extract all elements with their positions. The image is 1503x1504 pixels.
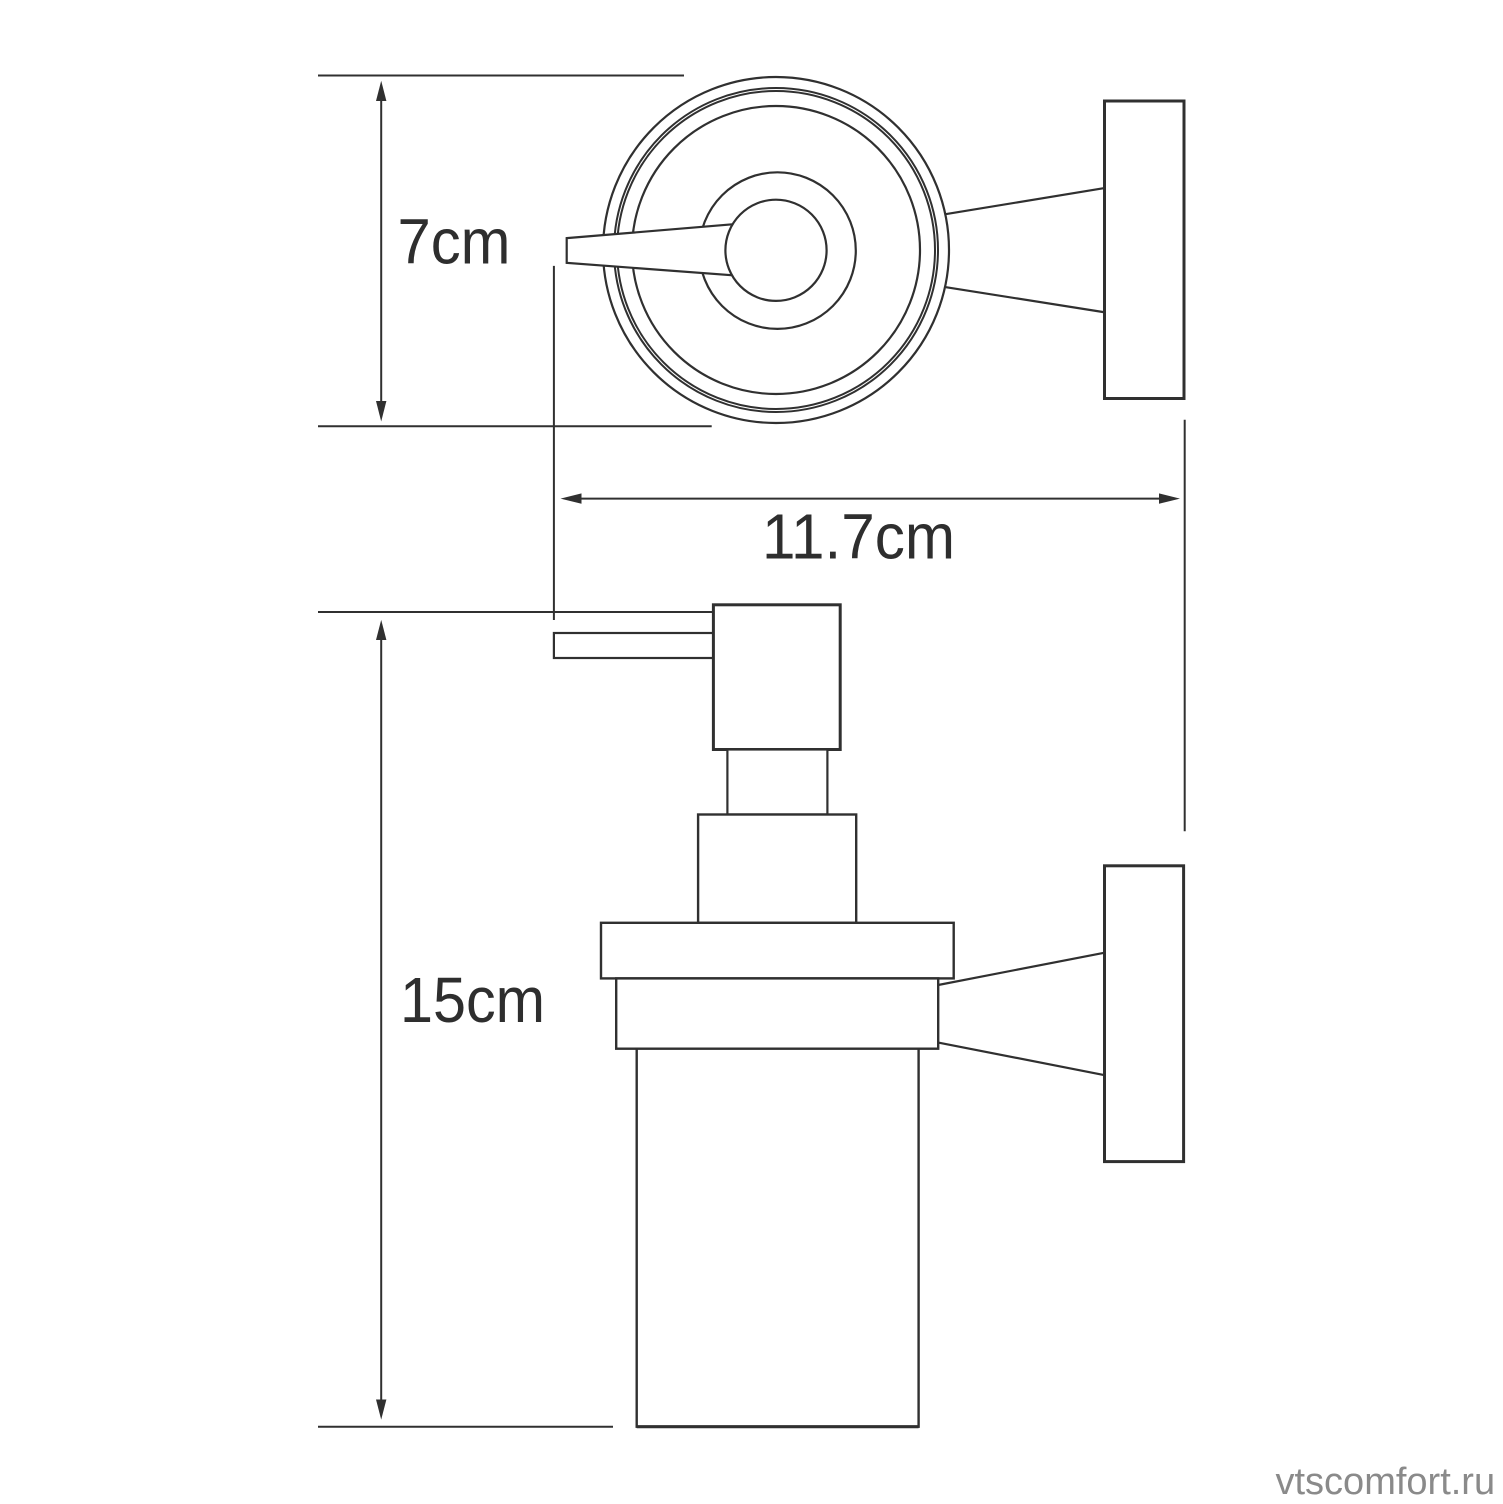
svg-text:vtscomfort.ru: vtscomfort.ru bbox=[1276, 1461, 1496, 1503]
svg-text:15cm: 15cm bbox=[400, 964, 545, 1036]
svg-text:7cm: 7cm bbox=[398, 206, 511, 278]
svg-text:11.7cm: 11.7cm bbox=[762, 501, 955, 573]
